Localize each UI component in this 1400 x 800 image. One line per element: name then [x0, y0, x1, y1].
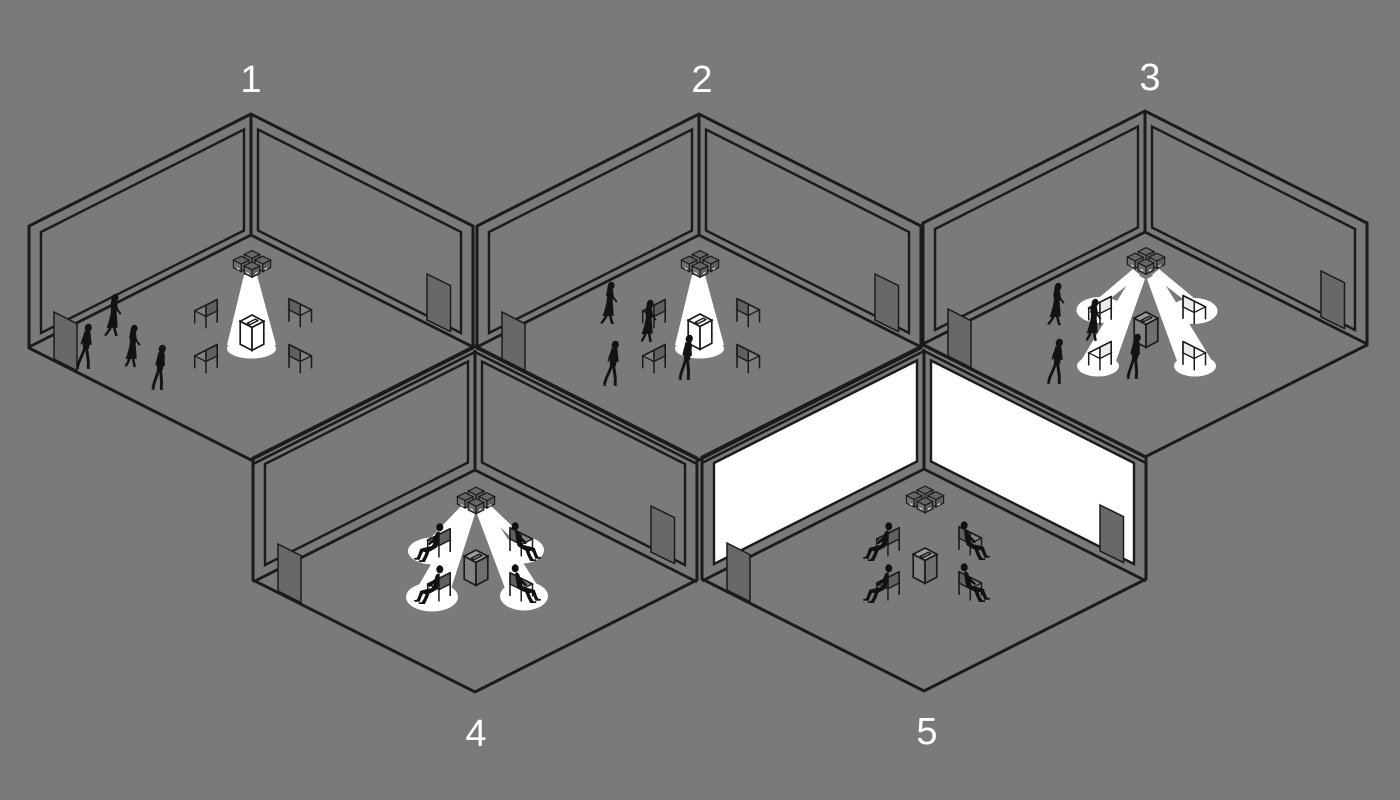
svg-text:4: 4 — [465, 713, 486, 755]
svg-text:5: 5 — [916, 711, 937, 753]
svg-text:1: 1 — [240, 59, 261, 101]
svg-text:3: 3 — [1139, 57, 1160, 99]
svg-text:2: 2 — [691, 59, 712, 101]
